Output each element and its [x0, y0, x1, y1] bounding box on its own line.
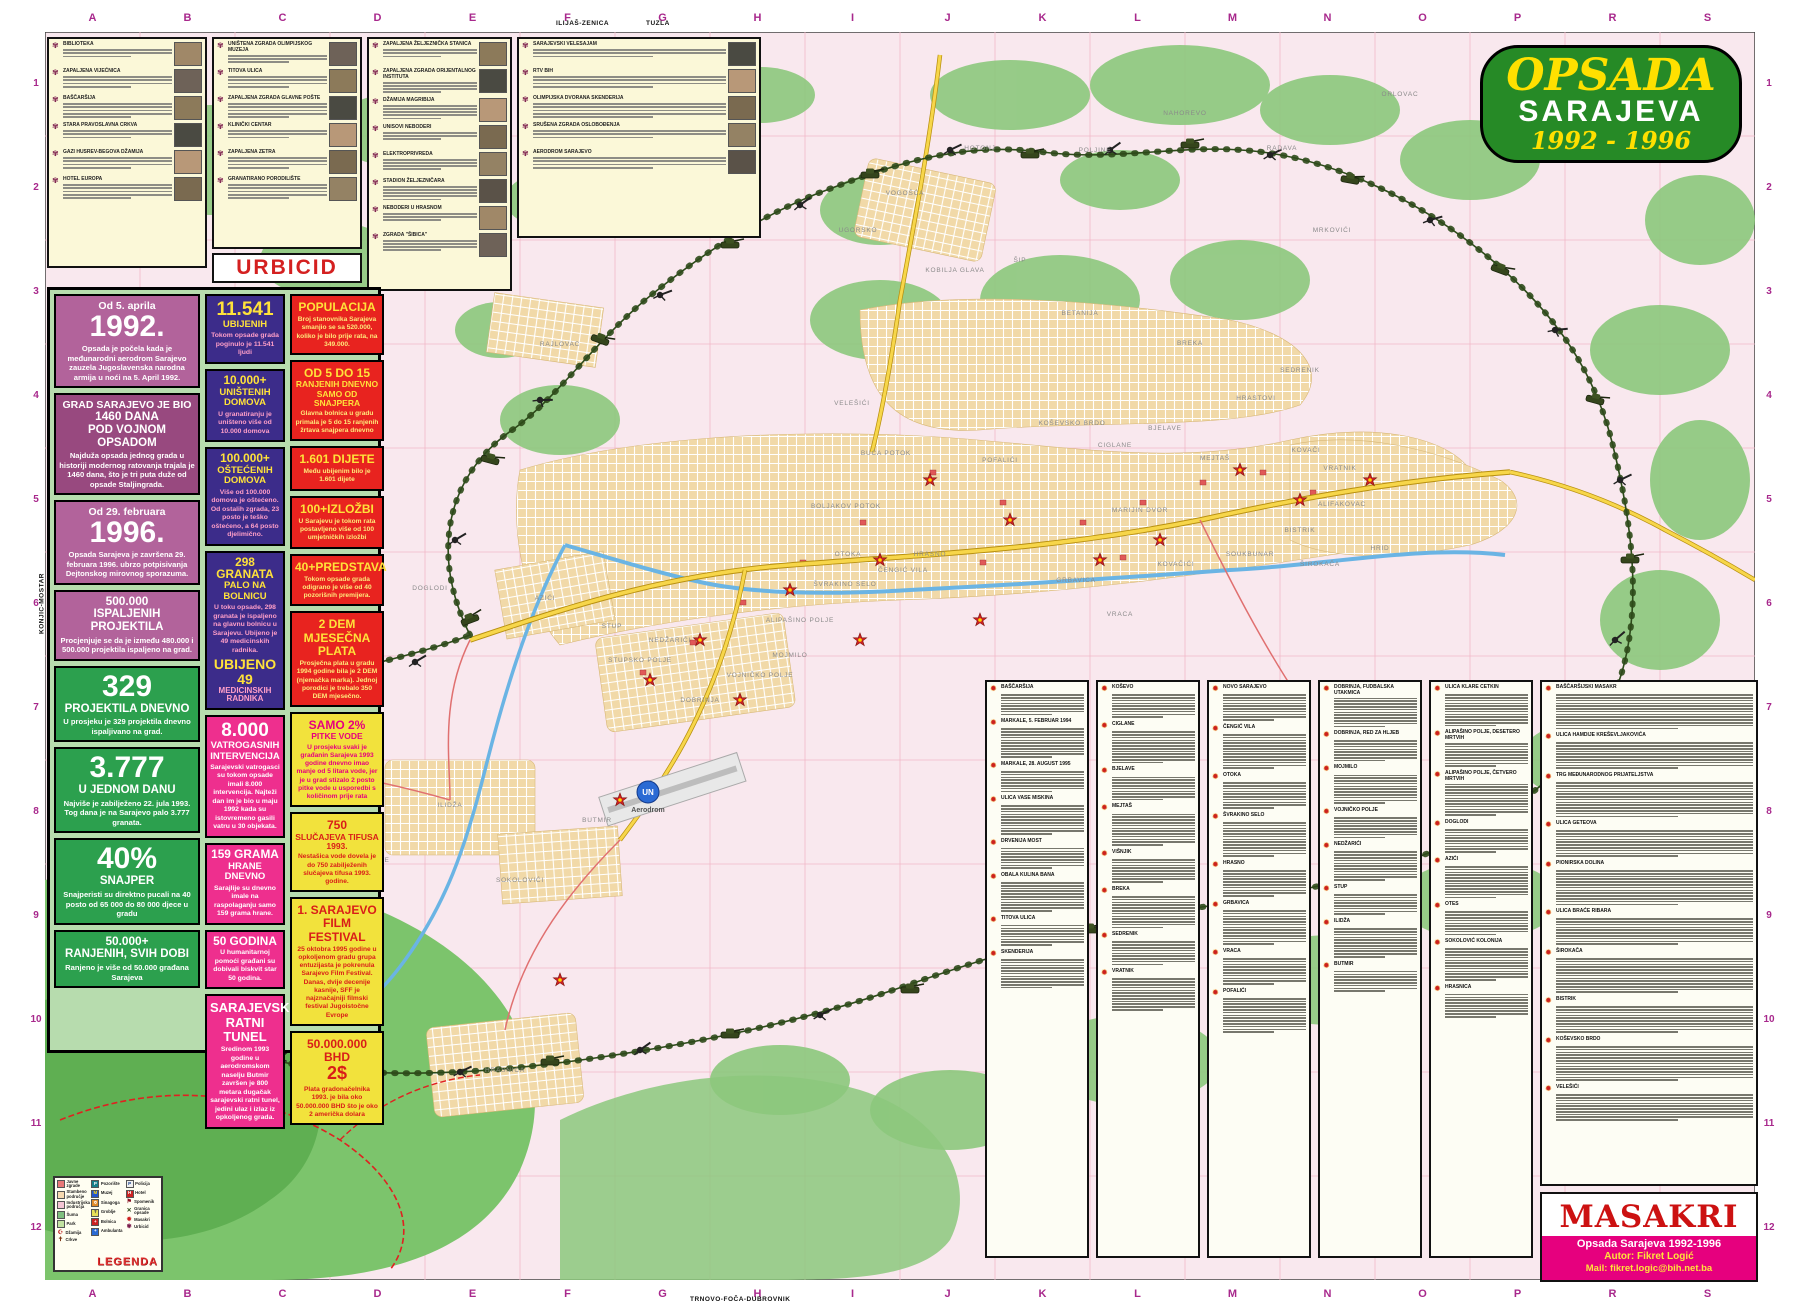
stat-body: Nestašica vode dovela je do 750 zabiljež…: [295, 853, 379, 886]
body-text-lines: [1334, 894, 1417, 915]
place-label: VOJNIČKO POLJE: [727, 670, 794, 679]
urbicid-entry: ✾ELEKTROPRIVREDA: [372, 152, 507, 176]
stat-box: 159 GRAMAHRANE DNEVNOSarajlije su dnevno…: [205, 843, 285, 925]
legend-item: ✾Urbicid: [126, 1224, 159, 1230]
grid-letter-l-bottom: L: [1131, 1288, 1145, 1300]
massacre-star-icon: ✹: [1434, 857, 1443, 865]
grid-number-9-right: 9: [1760, 910, 1778, 921]
body-text-lines: [533, 76, 726, 87]
massacre-entry: ✹KOŠEVSKO BRDO: [1545, 1037, 1753, 1081]
area-icon: [57, 1220, 65, 1228]
stat-box: SAMO 2%PITKE VODEU prosjeku svaki je gra…: [290, 712, 384, 807]
place-label: BREKA: [1177, 340, 1203, 347]
urbicid-entry-main: GAZI HUSREV-BEGOVA DŽAMIJA: [63, 150, 172, 170]
legend-label: Stambeno područje: [67, 1190, 91, 1199]
massacre-entry-head: ✹VRACA: [1212, 949, 1306, 957]
title-line3: 1992 - 1996: [1483, 128, 1739, 154]
stat-box: 329PROJEKTILA DNEVNOU prosjeku je 329 pr…: [54, 666, 200, 743]
place-label: HRID: [1370, 545, 1389, 552]
masakri-credit-box: MASAKRI Opsada Sarajeva 1992-1996 Autor:…: [1540, 1192, 1758, 1282]
place-label: KOVAČI: [1292, 445, 1321, 454]
grid-number-7-right: 7: [1760, 702, 1778, 713]
massacre-entry: ✹TITOVA ULICA: [990, 916, 1084, 946]
urbicid-entry-main: TITOVA ULICA: [228, 69, 327, 89]
grid-letter-b-top: B: [181, 12, 195, 24]
body-text-lines: [1445, 911, 1528, 935]
urbicid-entry-title: RTV BIH: [533, 69, 726, 75]
urbicid-entry-title: STADION ŽELJEZNIČARA: [383, 179, 477, 185]
massacre-star-icon: ✹: [1212, 949, 1221, 957]
map-legend: Javne zgradeStambeno područjeIndustrijsk…: [53, 1176, 163, 1272]
grid-letter-n-bottom: N: [1321, 1288, 1335, 1300]
urbicid-entry-main: SRUŠENA ZGRADA OSLOBOĐENJA: [533, 123, 726, 140]
urbicid-entry-main: ZAPALJENA ZGRADA ORIJENTALNOG INSTITUTA: [383, 69, 477, 95]
massacre-entry-title: TITOVA ULICA: [1001, 916, 1035, 922]
stat-box: Od 29. februara1996.Opsada Sarajeva je z…: [54, 500, 200, 585]
stat-value: 11.541: [210, 300, 280, 319]
place-label: ČENGIĆ VILA: [878, 565, 928, 574]
urbicid-entry-main: ZGRADA "ŠIBICA": [383, 233, 477, 253]
body-text-lines: [383, 240, 477, 251]
legend-label: Policija: [135, 1182, 150, 1186]
stat-subheading: SLUČAJEVA TIFUSA 1993.: [295, 833, 379, 852]
stat-box: 50 GODINAU humanitarnoj pomoći građani s…: [205, 930, 285, 990]
place-label: DOGLODI: [412, 585, 448, 592]
photo-thumbnail: [479, 206, 507, 230]
urbicid-entry: ✾SARAJEVSKI VELESAJAM: [522, 42, 756, 66]
urbicid-entry-title: ZAPALJENA ZETRA: [228, 150, 327, 156]
urbicid-entry-main: UNIŠTENA ZGRADA OLIMPIJSKOG MUZEJA: [228, 42, 327, 64]
massacre-entry-head: ✹BISTRIK: [1545, 997, 1753, 1005]
place-label: HRASNO: [914, 551, 947, 558]
massacre-column-2: ✹KOŠEVO✹CIGLANE✹BJELAVE✹MEJTAŠ✹VIŠNJIK✹B…: [1096, 680, 1200, 1258]
groblje-icon: ✝: [91, 1209, 99, 1217]
stat-body: Glavna bolnica u gradu primala je 5 do 1…: [295, 410, 379, 435]
stat-heading: UBIJENIH: [210, 320, 280, 330]
legend-item: +Ambulanta: [91, 1228, 124, 1236]
stat-heading: 50.000.000 BHD: [295, 1038, 379, 1064]
urbicid-entry: ✾DŽAMIJA MAGRIBIJA: [372, 98, 507, 122]
massacre-entry-title: OBALA KULINA BANA: [1001, 873, 1055, 879]
massacre-entry: ✹VOJNIČKO POLJE: [1323, 808, 1417, 838]
place-label: ILIDŽA: [437, 800, 462, 809]
urbicid-entry-title: UNIŠTENA ZGRADA OLIMPIJSKOG MUZEJA: [228, 42, 327, 54]
body-text-lines: [1556, 958, 1753, 993]
spomenik-icon: ⚑: [126, 1199, 133, 1205]
urbicid-entry-title: STARA PRAVOSLAVNA CRKVA: [63, 123, 172, 129]
place-label: ORLOVAC: [1382, 91, 1419, 98]
massacre-entry: ✹POFALIĆI: [1212, 989, 1306, 1033]
poster-title: OPSADA SARAJEVA 1992 - 1996: [1480, 45, 1742, 163]
urbicid-entry-title: OLIMPIJSKA DVORANA SKENDERIJA: [533, 96, 726, 102]
urbicid-entry-main: ZAPALJENA ZETRA: [228, 150, 327, 170]
urbicid-entry-main: ZAPALJENA VIJEĆNICA: [63, 69, 172, 89]
massacre-entry-title: ŠVRAKINO SELO: [1223, 813, 1264, 819]
stat-body: U granatiranju je uništeno više od 10.00…: [210, 411, 280, 436]
massacre-star-icon: ✹: [1323, 731, 1332, 739]
urbicid-entry: ✾UNISOVI NEBODERI: [372, 125, 507, 149]
stat-heading: 1.601 DIJETE: [295, 453, 379, 466]
stat-subheading: RANJENIH DNEVNO SAMO OD SNAJPERA: [295, 380, 379, 408]
massacre-entry-head: ✹MEJTAŠ: [1101, 804, 1195, 812]
svg-text:Aerodrom: Aerodrom: [631, 807, 664, 814]
photo-thumbnail: [728, 42, 756, 66]
massacre-entry-head: ✹VELEŠIĆI: [1545, 1085, 1753, 1093]
body-text-lines: [1445, 829, 1528, 853]
massacre-entry-title: ULICA HAMDIJE KREŠEVLJAKOVIĆA: [1556, 733, 1646, 739]
body-text-lines: [1556, 742, 1753, 769]
legend-item: PPozorište: [91, 1180, 124, 1188]
urbicid-entry-title: BIBLIOTEKA: [63, 42, 172, 48]
body-text-lines: [228, 55, 327, 63]
stat-box: 750SLUČAJEVA TIFUSA 1993.Nestašica vode …: [290, 812, 384, 892]
place-label: BUTMIR: [582, 817, 612, 824]
massacre-entry-head: ✹ŠIROKAČA: [1545, 949, 1753, 957]
photo-thumbnail: [479, 179, 507, 203]
massacre-entry-head: ✹HRASNICA: [1434, 985, 1528, 993]
photo-thumbnail: [329, 123, 357, 147]
stat-body: U prosjeku svaki je građanin Sarajeva 19…: [295, 744, 379, 802]
massacre-entry-title: MARKALE, 5. FEBRUAR 1994: [1001, 719, 1071, 725]
statistics-panel: Od 5. aprila1992.Opsada je počela kada j…: [47, 287, 381, 1053]
massacre-entry-title: BUTMIR: [1334, 962, 1353, 968]
massacre-star-icon: ✹: [1545, 773, 1554, 781]
massacre-entry-head: ✹PIONIRSKA DOLINA: [1545, 861, 1753, 869]
grid-letter-p-bottom: P: [1511, 1288, 1525, 1300]
urbicid-entry-title: SARAJEVSKI VELESAJAM: [533, 42, 726, 48]
massacre-entry-title: ULICA GETEOVA: [1556, 821, 1597, 827]
grid-number-10-left: 10: [27, 1014, 45, 1025]
massacre-star-icon: ✹: [1434, 730, 1443, 738]
place-label: RADAVA: [1267, 145, 1298, 152]
body-text-lines: [63, 157, 172, 168]
massacre-entry-title: SEDRENIK: [1112, 932, 1138, 938]
stat-body: Prosječna plata u gradu 1994 godine bila…: [295, 660, 379, 701]
massacre-entry-title: STUP: [1334, 885, 1347, 891]
massacre-entry: ✹MOJMILO: [1323, 765, 1417, 804]
urbicid-panel-4: ✾SARAJEVSKI VELESAJAM✾RTV BIH✾OLIMPIJSKA…: [517, 37, 761, 238]
massacre-entry-head: ✹KOŠEVO: [1101, 685, 1195, 693]
photo-thumbnail: [479, 233, 507, 257]
grid-letter-b-bottom: B: [181, 1288, 195, 1300]
massacre-star-icon: ✹: [1434, 771, 1443, 779]
body-text-lines: [1334, 817, 1417, 838]
massacre-star-icon: ✹: [1101, 767, 1110, 775]
grid-letter-s-bottom: S: [1701, 1288, 1715, 1300]
massacre-star-icon: ✹: [990, 719, 999, 727]
legend-column-2: PPozorišteMMuzej✡Sinagoga✝Groblje+Bolnic…: [91, 1180, 124, 1268]
body-text-lines: [228, 157, 327, 168]
massacre-star-icon: ✹: [1323, 962, 1332, 970]
stat-body: 25 oktobra 1995 godine u opkoljenom grad…: [295, 946, 379, 1020]
urbicid-entry: ✾STADION ŽELJEZNIČARA: [372, 179, 507, 203]
massacre-entry-head: ✹ULICA BRAĆE RIBARA: [1545, 909, 1753, 917]
massacre-entry-title: NEDŽARIĆI: [1334, 842, 1361, 848]
grid-number-1-left: 1: [27, 78, 45, 89]
stat-box: 1.601 DIJETEMeđu ubijenim bilo je 1.601 …: [290, 446, 384, 491]
road-label-trnovo: TRNOVO-FOČA-DUBROVNIK: [690, 1296, 790, 1303]
massacre-entry-title: BISTRIK: [1556, 997, 1576, 1003]
massacre-entry: ✹OTES: [1434, 902, 1528, 935]
massacre-star-icon: ✹: [1212, 901, 1221, 909]
road-label-ilijas: ILIJAŠ-ZENICA: [556, 20, 609, 27]
massacre-entry: ✹ULICA KLARE CETKIN: [1434, 685, 1528, 726]
ambulanta-icon: +: [91, 1228, 99, 1236]
body-text-lines: [1223, 694, 1306, 721]
urbicid-entry: ✾STARA PRAVOSLAVNA CRKVA: [52, 123, 202, 147]
massacre-star-icon: ✹: [1545, 685, 1554, 693]
massacre-entry: ✹VELEŠIĆI: [1545, 1085, 1753, 1121]
urbicid-entry-main: DŽAMIJA MAGRIBIJA: [383, 98, 477, 121]
džamija-icon: ☪: [57, 1230, 64, 1236]
stats-column-3: POPULACIJABroj stanovnika Sarajeva smanj…: [290, 294, 384, 1134]
body-text-lines: [1556, 830, 1753, 857]
credit-title: Opsada Sarajeva 1992-1996: [1542, 1238, 1756, 1251]
body-text-lines: [383, 186, 477, 201]
urbicid-flower-icon: ✾: [52, 177, 61, 185]
massacre-entry-head: ✹BJELAVE: [1101, 767, 1195, 775]
massacre-star-icon: ✹: [1323, 842, 1332, 850]
place-label: OTOKA: [835, 551, 862, 558]
urbicid-flower-icon: ✾: [52, 42, 61, 50]
stat-heading: OŠTEĆENIH DOMOVA: [210, 466, 280, 487]
stat-body: Najviše je zabilježeno 22. jula 1993. To…: [59, 799, 195, 827]
massacre-entry: ✹STUP: [1323, 885, 1417, 915]
massacre-entry-head: ✹BREKA: [1101, 887, 1195, 895]
grid-letter-m-bottom: M: [1226, 1288, 1240, 1300]
urbicid-entry: ✾GAZI HUSREV-BEGOVA DŽAMIJA: [52, 150, 202, 174]
body-text-lines: [383, 49, 477, 57]
massacre-entry-title: BAŠČARŠIJSKI MASAKR: [1556, 685, 1617, 691]
grid-letter-a-top: A: [86, 12, 100, 24]
massacre-entry: ✹ALIPAŠINO POLJE, DESETERO MRTVIH: [1434, 730, 1528, 767]
place-label: SOUKBUNAR: [1226, 551, 1274, 558]
stat-heading: POD VOJNOM OPSADOM: [59, 424, 195, 449]
body-text-lines: [1223, 998, 1306, 1033]
photo-thumbnail: [479, 42, 507, 66]
stat-box: 2 DEM MJESEČNA PLATAProsječna plata u gr…: [290, 611, 384, 707]
urbicid-entry: ✾UNIŠTENA ZGRADA OLIMPIJSKOG MUZEJA: [217, 42, 357, 66]
road-label-tuzla: TUZLA: [646, 20, 670, 27]
grid-letter-g-bottom: G: [656, 1288, 670, 1300]
stat-value: 10.000+: [210, 375, 280, 387]
photo-thumbnail: [728, 69, 756, 93]
massacre-star-icon: ✹: [1212, 725, 1221, 733]
place-label: NAHOREVO: [1163, 110, 1207, 117]
massacre-entry-title: ULICA KLARE CETKIN: [1445, 685, 1499, 691]
body-text-lines: [1112, 859, 1195, 883]
siege-map-poster: UN Aerodrom VOGOŠĆAHOTONJUGORSKOKOBILJA …: [0, 0, 1800, 1310]
stat-body: U prosjeku je 329 projektila dnevno ispa…: [59, 717, 195, 736]
legend-column-1: Javne zgradeStambeno područjeIndustrijsk…: [57, 1180, 90, 1268]
stat-box: GRAD SARAJEVO JE BIO1460 DANAPOD VOJNOM …: [54, 393, 200, 495]
stat-box: 50.000+RANJENIH, SVIH DOBIRanjeno je viš…: [54, 930, 200, 988]
place-label: VRACA: [1107, 611, 1133, 618]
stat-body: Tokom opsade grada odigrano je više od 4…: [295, 576, 379, 601]
grid-letter-r-bottom: R: [1606, 1288, 1620, 1300]
grid-letter-d-bottom: D: [371, 1288, 385, 1300]
legend-item: ☪Džamija: [57, 1230, 90, 1236]
stat-box: 500.000ISPALJENIH PROJEKTILAProcjenjuje …: [54, 590, 200, 661]
body-text-lines: [1223, 734, 1306, 769]
body-text-lines: [63, 103, 172, 118]
urbicid-flower-icon: ✾: [372, 233, 381, 241]
massacre-entry-head: ✹VIŠNJIK: [1101, 850, 1195, 858]
massacre-star-icon: ✹: [1212, 989, 1221, 997]
massacre-entry-title: OTOKA: [1223, 773, 1241, 779]
body-text-lines: [1112, 694, 1195, 718]
massacre-entry-head: ✹CIGLANE: [1101, 722, 1195, 730]
body-text-lines: [1001, 848, 1084, 869]
massacre-column-4: ✹DOBRINJA, FUDBALSKA UTAKMICA✹DOBRINJA, …: [1318, 680, 1422, 1258]
urbicid-entry-title: SRUŠENA ZGRADA OSLOBOĐENJA: [533, 123, 726, 129]
grid-number-11-left: 11: [27, 1118, 45, 1129]
body-text-lines: [1223, 870, 1306, 897]
body-text-lines: [1445, 784, 1528, 816]
legend-label: Park: [67, 1222, 76, 1226]
massacre-entry-title: VRACA: [1223, 949, 1241, 955]
stat-box: 50.000.000 BHD2$Plata gradonačelnika 199…: [290, 1031, 384, 1125]
grid-letter-e-bottom: E: [466, 1288, 480, 1300]
legend-item: ✝Groblje: [91, 1209, 124, 1217]
legend-label: Spomenik: [134, 1200, 154, 1204]
place-label: HRASNICA: [485, 1067, 525, 1074]
urbicid-entry-title: BAŠČARŠIJA: [63, 96, 172, 102]
massacre-entry-head: ✹BAŠČARŠIJA: [990, 685, 1084, 693]
massacre-star-icon: ✹: [1101, 932, 1110, 940]
photo-thumbnail: [174, 69, 202, 93]
place-label: POLJINE: [1079, 147, 1112, 154]
urbicid-entry: ✾RTV BIH: [522, 69, 756, 93]
massacre-entry: ✹NOVO SARAJEVO: [1212, 685, 1306, 721]
massacre-entry-head: ✹ULICA GETEOVA: [1545, 821, 1753, 829]
massacre-star-icon: ✹: [1323, 685, 1332, 693]
place-label: BETANIJA: [1062, 310, 1099, 317]
massacre-entry-head: ✹GRBAVICA: [1212, 901, 1306, 909]
massacre-entry: ✹SEDRENIK: [1101, 932, 1195, 965]
urbicid-entry: ✾ZAPALJENA ZGRADA GLAVNE POŠTE: [217, 96, 357, 120]
massacre-entry-title: PIONIRSKA DOLINA: [1556, 861, 1604, 867]
urbicid-entry-title: KLINIČKI CENTAR: [228, 123, 327, 129]
massacre-entry-title: BJELAVE: [1112, 767, 1135, 773]
credit-strip: Opsada Sarajeva 1992-1996 Autor: Fikret …: [1542, 1236, 1756, 1280]
grid-letter-o-top: O: [1416, 12, 1430, 24]
urbicid-entry-title: ZAPALJENA ZGRADA ORIJENTALNOG INSTITUTA: [383, 69, 477, 81]
urbicid-flower-icon: ✾: [217, 69, 226, 77]
stat-box: OD 5 DO 15RANJENIH DNEVNO SAMO OD SNAJPE…: [290, 360, 384, 441]
massacre-star-icon: ✹: [990, 762, 999, 770]
stat-value: 298 GRANATA: [210, 557, 280, 581]
stat-subheading: 2$: [295, 1064, 379, 1084]
massacre-entry-head: ✹TRG MEĐUNARODNOG PRIJATELJSTVA: [1545, 773, 1753, 781]
grid-number-5-left: 5: [27, 494, 45, 505]
massacre-entry: ✹VRACA: [1212, 949, 1306, 985]
massacre-entry: ✹ULICA VASE MISKINA: [990, 796, 1084, 835]
urbicid-entry-main: UNISOVI NEBODERI: [383, 125, 477, 142]
stat-body: Sarajlije su dnevno imale na raspolaganj…: [210, 885, 280, 919]
massacre-entry-head: ✹DOBRINJA, FUDBALSKA UTAKMICA: [1323, 685, 1417, 697]
body-text-lines: [1556, 870, 1753, 905]
body-text-lines: [1556, 918, 1753, 945]
place-label: BOLJAKOV POTOK: [811, 503, 881, 510]
massacre-column-3: ✹NOVO SARAJEVO✹ČENGIĆ VILA✹OTOKA✹ŠVRAKIN…: [1207, 680, 1311, 1258]
massacre-entry: ✹VIŠNJIK: [1101, 850, 1195, 883]
massacre-entry: ✹PIONIRSKA DOLINA: [1545, 861, 1753, 905]
stat-subheading: PITKE VODE: [295, 732, 379, 741]
legend-label: Javne zgrade: [67, 1180, 91, 1189]
body-text-lines: [1001, 959, 1084, 988]
massacre-entry-title: SKENDERIJA: [1001, 950, 1033, 956]
urbicid-flower-icon: ✾: [217, 150, 226, 158]
grid-letter-i-top: I: [846, 12, 860, 24]
urbicid-entry-main: AERODROM SARAJEVO: [533, 150, 726, 170]
body-text-lines: [383, 159, 477, 170]
urbicid-flower-icon: ✾: [217, 96, 226, 104]
legend-label: Granica opsade: [134, 1207, 159, 1216]
place-label: MARIJIN DVOR: [1112, 507, 1168, 514]
massacre-entry: ✹KOŠEVO: [1101, 685, 1195, 718]
massacre-entry: ✹ULICA BRAĆE RIBARA: [1545, 909, 1753, 945]
place-label: BJELAVE: [1148, 425, 1182, 432]
massacre-entry: ✹ŠVRAKINO SELO: [1212, 813, 1306, 857]
massacre-entry-title: BAŠČARŠIJA: [1001, 685, 1034, 691]
stats-column-1: Od 5. aprila1992.Opsada je počela kada j…: [54, 294, 200, 1134]
urbicid-flower-icon: ✾: [372, 69, 381, 77]
urbicid-entry-main: ZAPALJENA ŽELJEZNIČKA STANICA: [383, 42, 477, 59]
photo-thumbnail: [329, 177, 357, 201]
massacre-star-icon: ✹: [1545, 1085, 1554, 1093]
place-label: RAJLOVAC: [540, 341, 580, 348]
massacre-entry-head: ✹ALIPAŠINO POLJE, ČETVERO MRTVIH: [1434, 771, 1528, 783]
body-text-lines: [1001, 882, 1084, 911]
grid-letter-j-bottom: J: [941, 1288, 955, 1300]
body-text-lines: [63, 76, 172, 87]
massacre-star-icon: ✹: [990, 950, 999, 958]
stat-heading: 750: [295, 819, 379, 832]
massacre-entry: ✹MARKALE, 28. AUGUST 1995: [990, 762, 1084, 792]
area-icon: [57, 1201, 65, 1209]
stat-heading: POPULACIJA: [295, 301, 379, 314]
place-label: MRKOVIĆI: [1313, 225, 1352, 234]
massacre-entry-title: CIGLANE: [1112, 722, 1135, 728]
legend-label: Groblje: [101, 1210, 116, 1214]
massacre-entry-head: ✹BUTMIR: [1323, 962, 1417, 970]
massacre-entry: ✹HRASNO: [1212, 861, 1306, 897]
massacre-entry-head: ✹ULICA KLARE CETKIN: [1434, 685, 1528, 693]
stat-body: Tokom opsade grada poginulo je 11.541 lj…: [210, 332, 280, 357]
urbicid-entry: ✾ZAPALJENA VIJEĆNICA: [52, 69, 202, 93]
massacre-star-icon: ✹: [1545, 821, 1554, 829]
massacre-entry-head: ✹ŠVRAKINO SELO: [1212, 813, 1306, 821]
body-text-lines: [228, 184, 327, 199]
photo-thumbnail: [728, 150, 756, 174]
stat-value: 100.000+: [210, 453, 280, 465]
body-text-lines: [63, 184, 172, 199]
massacre-entry-title: ILIDŽA: [1334, 919, 1350, 925]
photo-thumbnail: [479, 125, 507, 149]
massacre-entry: ✹DRVENIJA MOST: [990, 839, 1084, 869]
massacre-star-icon: ✹: [1434, 939, 1443, 947]
urbicid-entry-title: TITOVA ULICA: [228, 69, 327, 75]
massacre-entry: ✹NEDŽARIĆI: [1323, 842, 1417, 881]
massacre-entry: ✹OBALA KULINA BANA: [990, 873, 1084, 912]
grid-letter-o-bottom: O: [1416, 1288, 1430, 1300]
massacre-entry-head: ✹OTES: [1434, 902, 1528, 910]
photo-thumbnail: [479, 152, 507, 176]
stat-box: 1. SARAJEVO FILM FESTIVAL25 oktobra 1995…: [290, 897, 384, 1026]
stat-heading: RANJENIH, SVIH DOBI: [59, 948, 195, 961]
place-label: VELEŠIĆI: [834, 398, 870, 407]
